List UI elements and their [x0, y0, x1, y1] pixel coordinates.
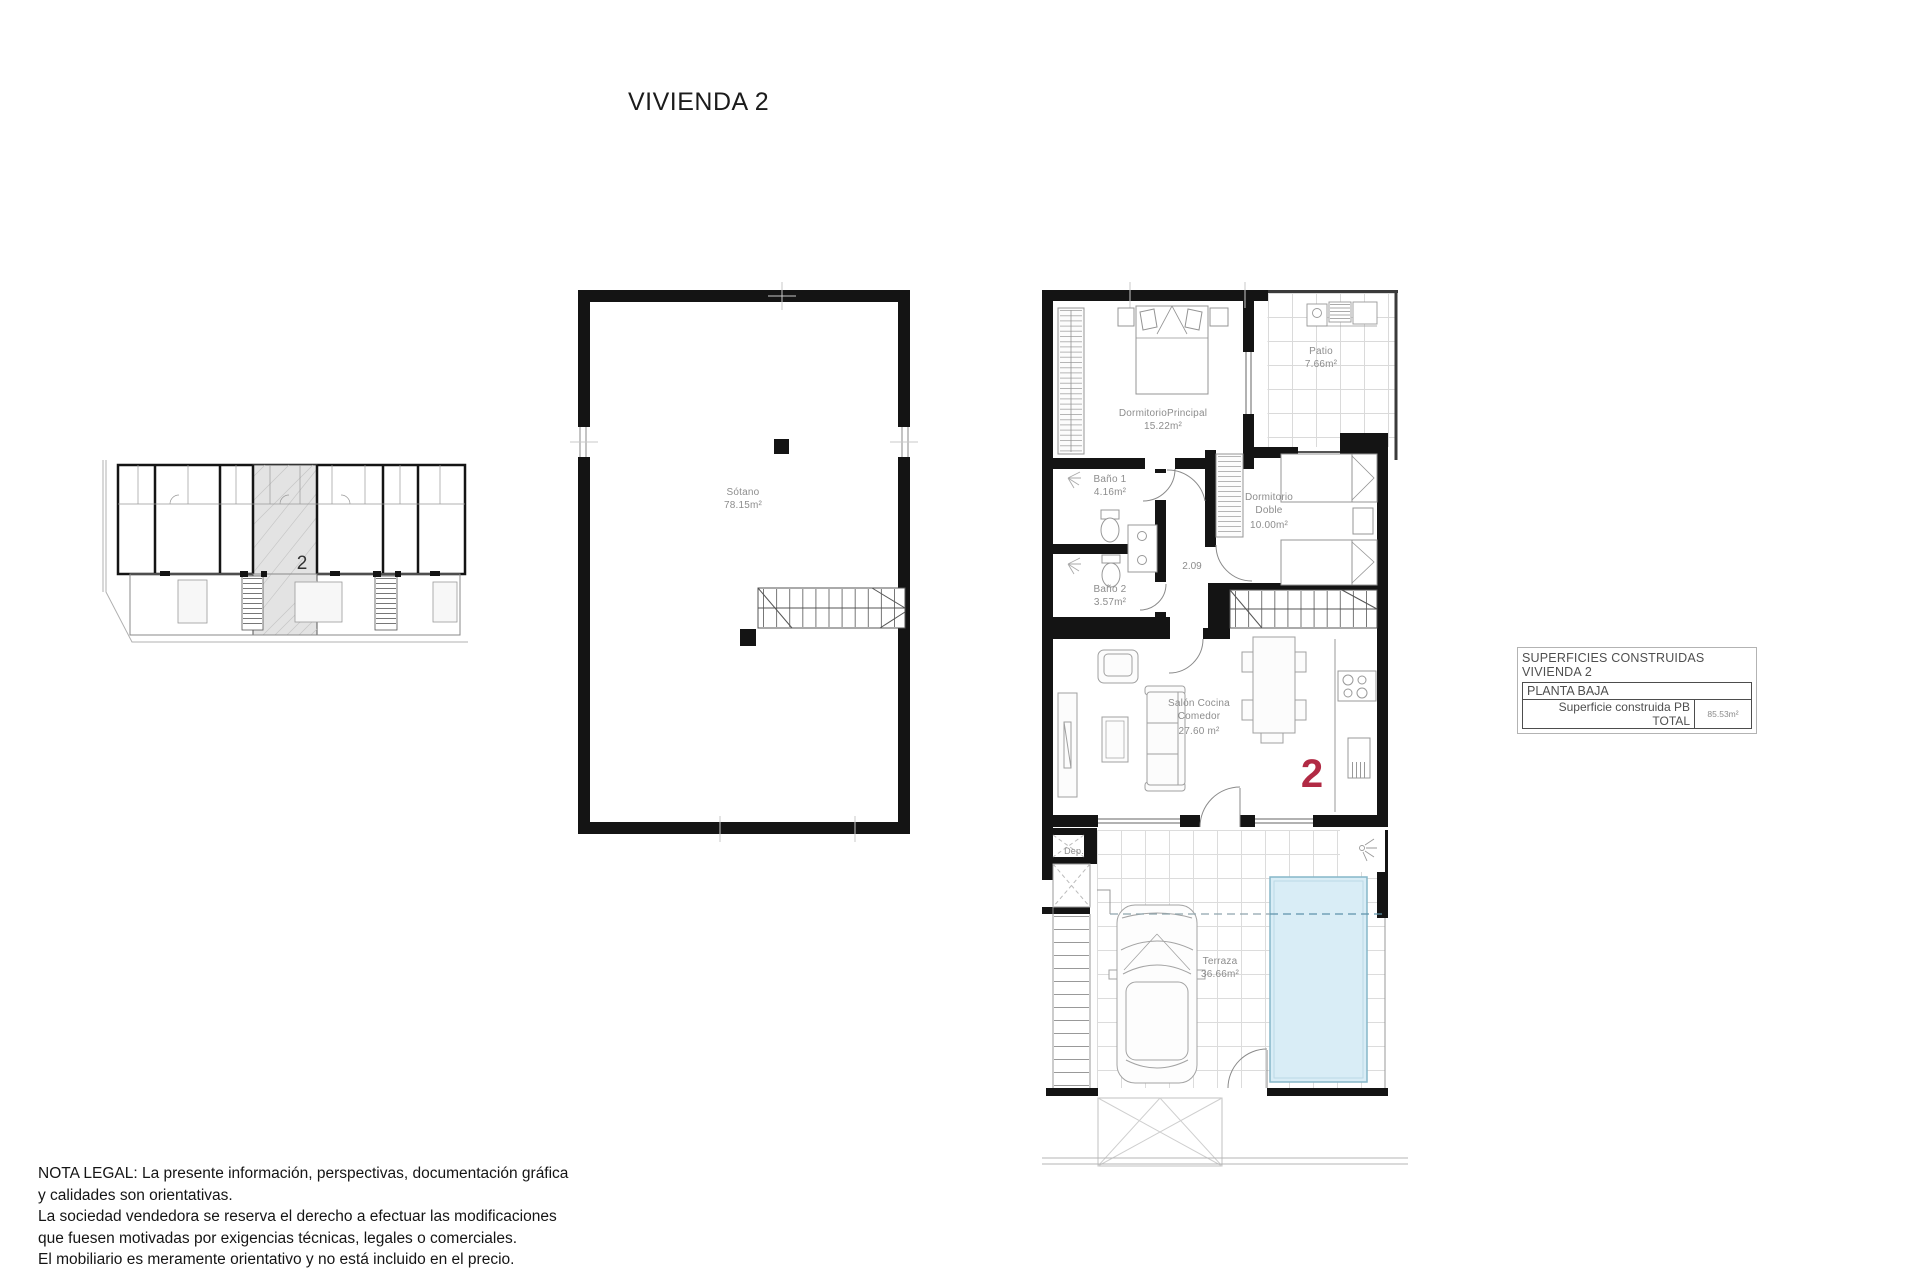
legal-line: La sociedad vendedora se reserva el dere… [38, 1206, 568, 1228]
room-label-bano2: Baño 2 3.57m² [1080, 584, 1140, 609]
areas-table: SUPERFICIES CONSTRUIDAS VIVIENDA 2 PLANT… [1517, 647, 1757, 734]
page-title: VIVIENDA 2 [628, 88, 769, 117]
kitchen [1335, 639, 1376, 812]
pool [1270, 877, 1367, 1082]
room-area: 3.57m² [1080, 597, 1140, 610]
room-label-dormitorio-doble: Dormitorio Doble 10.00m² [1237, 492, 1301, 533]
room-area: 36.66m² [1183, 969, 1257, 982]
sidewalk [1042, 1158, 1408, 1164]
room-label-salon: Salón Cocina Comedor 27.60 m² [1168, 698, 1230, 739]
legal-line: que fuesen motivadas por exigencias técn… [38, 1228, 568, 1250]
room-area: 4.16m² [1080, 487, 1140, 500]
legal-note: NOTA LEGAL: La presente información, per… [38, 1163, 568, 1271]
legal-line: y calidades son orientativas. [38, 1185, 568, 1207]
room-area: 15.22m² [1092, 421, 1234, 434]
bed-principal [1118, 306, 1228, 394]
outdoor-shower [1340, 830, 1385, 872]
plan-sheet: VIVIENDA 2 [0, 0, 1920, 1280]
room-name: DormitorioPrincipal [1092, 408, 1234, 421]
room-name: Dormitorio Doble [1237, 492, 1301, 517]
garage-gate [1098, 1098, 1222, 1166]
areas-table-subtitle: VIVIENDA 2 [1522, 665, 1752, 679]
car [1109, 905, 1205, 1083]
floor-plan-basement [570, 282, 918, 844]
wardrobe-principal [1058, 308, 1084, 454]
unit-number-ground: 2 [1290, 752, 1334, 796]
room-label-patio: Patio 7.66m² [1286, 346, 1356, 371]
legal-line: NOTA LEGAL: La presente información, per… [38, 1163, 568, 1185]
room-name: Dep. [1055, 845, 1093, 858]
room-area: 78.15m² [688, 500, 798, 513]
areas-table-title: SUPERFICIES CONSTRUIDAS [1522, 651, 1752, 665]
room-label-dep: Dep. [1055, 845, 1093, 858]
basement-walls [578, 290, 910, 834]
room-name: Patio [1286, 346, 1356, 359]
ground-stairs [1230, 590, 1377, 628]
wall-breaks [577, 427, 911, 457]
room-name: Baño 2 [1080, 584, 1140, 597]
room-area: 27.60 m² [1168, 726, 1230, 739]
room-label-sotano: Sótano 78.15m² [688, 487, 798, 512]
areas-table-row-label: Superficie construida PB TOTAL [1523, 700, 1695, 729]
basement-stairs [758, 588, 905, 628]
survey-ticks [570, 282, 918, 842]
room-name: Sótano [688, 487, 798, 500]
patio-appliances [1307, 302, 1377, 326]
room-name: Salón Cocina Comedor [1168, 698, 1230, 723]
room-name: Baño 1 [1080, 474, 1140, 487]
hall-dimension-label: 2.09 [1170, 561, 1214, 572]
areas-table-section: PLANTA BAJA [1523, 683, 1752, 700]
room-area: 10.00m² [1237, 520, 1301, 533]
room-label-dormitorio-principal: DormitorioPrincipal 15.22m² [1092, 408, 1234, 433]
room-name: Terraza [1183, 956, 1257, 969]
room-label-bano1: Baño 1 4.16m² [1080, 474, 1140, 499]
building-strip [118, 465, 465, 635]
dep-and-stair [1053, 835, 1090, 1088]
legal-line: El mobiliario es meramente orientativo y… [38, 1249, 568, 1271]
site-overview-plan: 2 [100, 452, 480, 662]
room-label-terraza: Terraza 36.66m² [1183, 956, 1257, 981]
room-area: 7.66m² [1286, 359, 1356, 372]
overview-unit-number: 2 [297, 553, 308, 574]
areas-table-row-value: 85.53m² [1695, 700, 1752, 729]
